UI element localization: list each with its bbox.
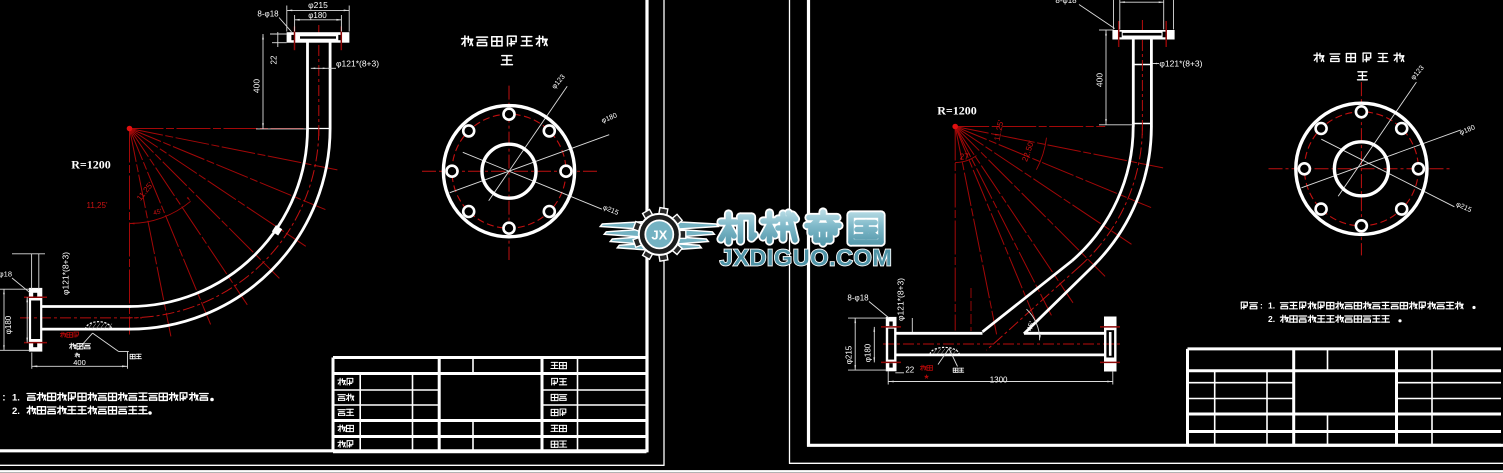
svg-text:27': 27'	[960, 153, 971, 162]
svg-text:400: 400	[1095, 73, 1105, 87]
svg-text::: :	[1260, 301, 1263, 311]
svg-text:φ180: φ180	[308, 11, 327, 20]
svg-text:11,25': 11,25'	[87, 201, 108, 210]
svg-text:φ121*(8+3): φ121*(8+3)	[336, 59, 379, 69]
svg-text:φ180: φ180	[4, 315, 13, 334]
svg-text:φ121*(8+3): φ121*(8+3)	[1159, 59, 1202, 69]
svg-text:★: ★	[923, 373, 929, 381]
svg-text:2.: 2.	[1268, 314, 1275, 324]
svg-text:φ215: φ215	[845, 345, 854, 364]
svg-text:400: 400	[73, 358, 86, 367]
svg-text:JX: JX	[651, 227, 667, 242]
svg-text:JXDIGUO.COM: JXDIGUO.COM	[720, 245, 893, 271]
svg-text:φ121*(8+3): φ121*(8+3)	[896, 278, 906, 321]
svg-text:R=1200: R=1200	[71, 158, 111, 172]
svg-text:φ215: φ215	[308, 0, 328, 10]
svg-text:1.: 1.	[1268, 301, 1275, 311]
svg-text:φ180: φ180	[864, 343, 873, 362]
svg-text::: :	[2, 393, 5, 404]
svg-text:400: 400	[252, 79, 262, 93]
svg-text:8-φ18: 8-φ18	[257, 10, 279, 19]
svg-text:8-φ18: 8-φ18	[847, 294, 869, 303]
svg-text:R=1200: R=1200	[937, 104, 977, 118]
svg-text:22: 22	[270, 55, 279, 64]
svg-text:φ121*(8+3): φ121*(8+3)	[61, 252, 71, 295]
svg-text:8-φ18: 8-φ18	[1055, 0, 1077, 5]
svg-text:22: 22	[905, 366, 914, 375]
svg-text:2.: 2.	[12, 406, 20, 417]
svg-text:1300: 1300	[990, 376, 1008, 385]
svg-text:1.: 1.	[12, 393, 20, 404]
svg-text:φ18: φ18	[0, 270, 12, 279]
